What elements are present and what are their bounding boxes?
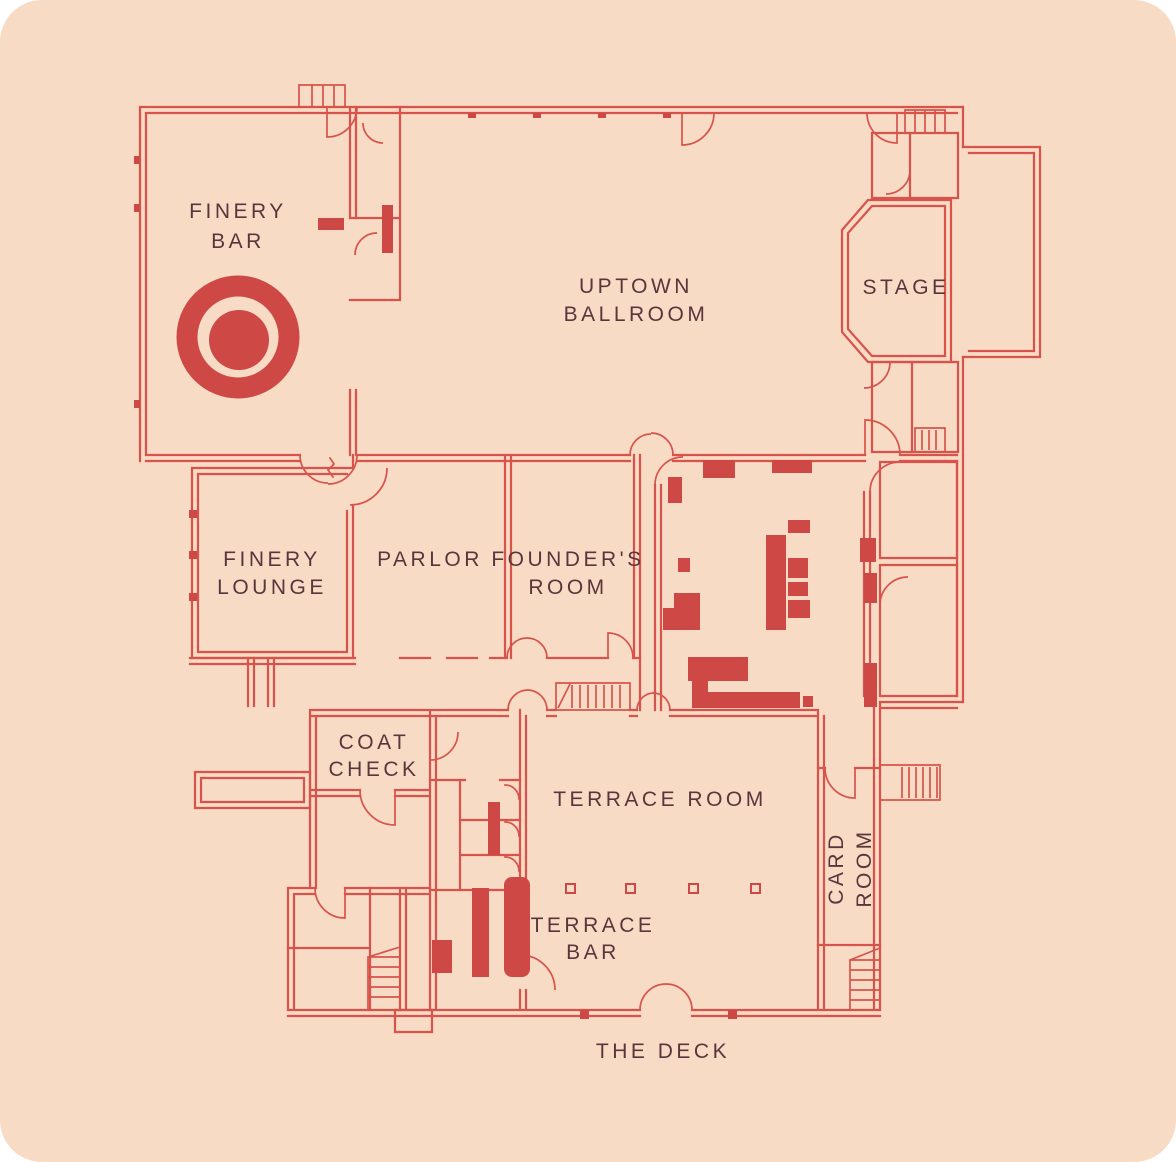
label-finery-bar-1: FINERY [189,200,287,223]
label-uptown-ballroom-2: BALLROOM [564,303,709,326]
label-parlor: PARLOR [377,548,483,571]
label-card-room-1: CARD [825,831,848,905]
label-founders-room-2: ROOM [528,576,607,599]
label-card-room-2: ROOM [853,828,876,907]
label-terrace-bar-2: BAR [566,941,620,964]
label-stage: STAGE [862,276,949,299]
label-finery-lounge-1: FINERY [223,548,321,571]
label-finery-lounge-2: LOUNGE [217,576,327,599]
floor-plan-svg: FINERY BAR UPTOWN BALLROOM STAGE FINERY … [0,0,1176,1162]
terrace-bar-counter [504,877,530,977]
floor-plan-page: FINERY BAR UPTOWN BALLROOM STAGE FINERY … [0,0,1176,1162]
label-finery-bar-2: BAR [211,230,265,253]
label-the-deck: THE DECK [596,1040,730,1063]
label-terrace-room: TERRACE ROOM [553,788,767,811]
label-terrace-bar-1: TERRACE [531,914,656,937]
label-uptown-ballroom-1: UPTOWN [579,275,693,298]
label-coat-check-1: COAT [339,731,410,754]
label-founders-room-1: FOUNDER'S [491,548,644,571]
label-coat-check-2: CHECK [328,758,419,781]
